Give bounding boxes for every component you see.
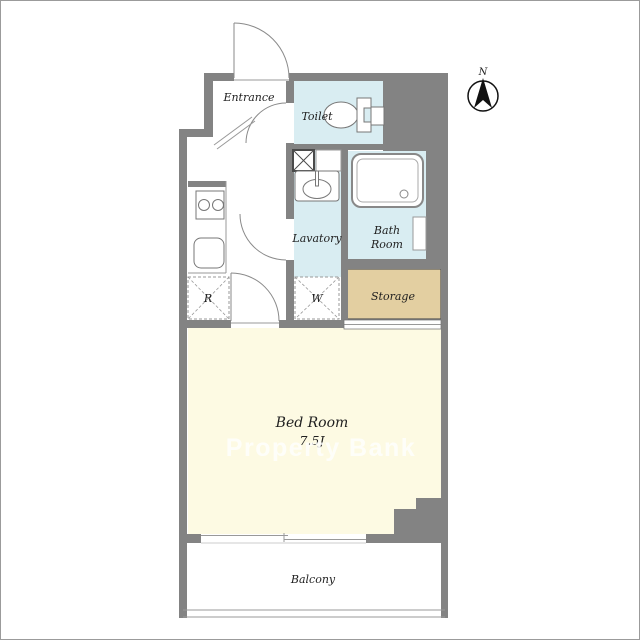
bath-door-recess	[413, 217, 426, 250]
compass-label: N	[478, 67, 489, 78]
wall-bedroom-top-left	[187, 320, 231, 328]
wall-bath-bottom	[344, 259, 448, 269]
wall-lavatory-bath-divider	[341, 144, 348, 328]
washer-space: W	[295, 277, 339, 319]
wall-kitchen-counter-top	[188, 181, 226, 187]
wall-bedroom-bottom-right	[366, 534, 448, 543]
wall-bedroom-bottom-left	[187, 534, 201, 543]
utility-box	[316, 150, 341, 171]
floor-plan: R W N Entrance Toilet Lavatory Bath Room…	[0, 0, 640, 640]
pipe-space	[293, 150, 341, 171]
toilet-wall-unit	[371, 107, 384, 125]
stove-burner-left	[199, 200, 210, 211]
wall-bedroom-top-mid	[279, 320, 344, 328]
wall-bedroom-notch-lower	[394, 509, 441, 535]
openings	[231, 80, 289, 323]
wall-left-upper	[204, 73, 213, 137]
wall-top-mid	[289, 73, 383, 81]
sink-faucet	[316, 171, 319, 186]
floor-plan-drawing: R W N Entrance Toilet Lavatory Bath Room…	[1, 1, 640, 640]
wall-right-main	[441, 266, 448, 618]
interior-doors	[231, 103, 286, 321]
bed-room-label: Bed Room	[275, 415, 349, 431]
kitchen-sink-icon	[194, 238, 224, 268]
storage-slider	[344, 320, 441, 329]
entrance-step-line-2	[217, 121, 255, 149]
bed-room	[188, 328, 441, 534]
wall-right-bath	[426, 151, 448, 266]
front-door	[234, 23, 289, 78]
stove-burner-right	[213, 200, 224, 211]
lavatory-label: Lavatory	[291, 232, 342, 245]
wall-top-right-block	[383, 73, 448, 151]
toilet-label: Toilet	[301, 110, 333, 123]
wall-toilet-left-upper	[286, 81, 294, 103]
watermark: Property Bank	[226, 434, 416, 462]
bath-room-label-line2: Room	[370, 238, 403, 251]
bath-room-label-line1: Bath	[373, 224, 400, 237]
sink-icon	[295, 171, 339, 201]
balcony-window	[201, 533, 366, 543]
wall-corridor-right-lower	[286, 260, 294, 328]
balcony-railing	[183, 610, 445, 617]
bathtub-outer	[352, 154, 423, 207]
bedroom-door-swing-arc	[231, 273, 279, 321]
balcony-label: Balcony	[290, 573, 336, 586]
refrigerator-space: R	[188, 277, 229, 319]
entrance-label: Entrance	[222, 91, 275, 104]
stove-icon	[196, 191, 224, 219]
front-door-swing-arc	[234, 23, 289, 78]
north-arrow-icon: N	[468, 67, 498, 111]
storage-label: Storage	[371, 290, 415, 303]
entrance-step-lines	[214, 117, 255, 149]
washer-label: W	[311, 292, 324, 305]
wall-left-main	[179, 129, 187, 618]
refrigerator-label: R	[203, 292, 212, 305]
wall-bedroom-notch-upper	[416, 498, 441, 510]
lavatory-door-swing-arc	[240, 214, 286, 260]
kitchen	[188, 181, 226, 273]
